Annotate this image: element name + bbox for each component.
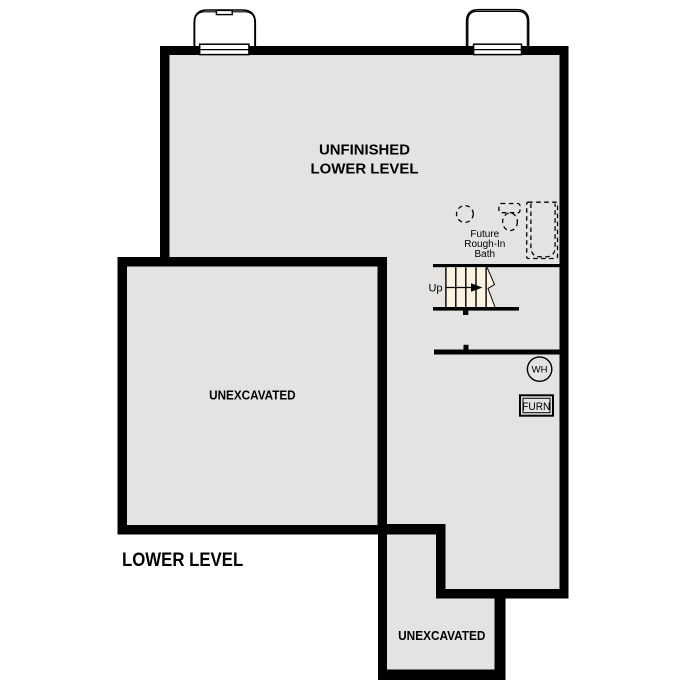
svg-text:LOWER LEVEL: LOWER LEVEL [311, 161, 419, 178]
svg-text:UNEXCAVATED: UNEXCAVATED [398, 628, 485, 643]
svg-text:WH: WH [532, 365, 548, 376]
svg-text:UNFINISHED: UNFINISHED [319, 142, 410, 159]
svg-text:Bath: Bath [475, 249, 496, 260]
svg-text:Up: Up [428, 282, 442, 294]
svg-text:FURN: FURN [522, 401, 550, 413]
svg-text:LOWER LEVEL: LOWER LEVEL [122, 549, 243, 571]
svg-text:UNEXCAVATED: UNEXCAVATED [209, 387, 296, 402]
